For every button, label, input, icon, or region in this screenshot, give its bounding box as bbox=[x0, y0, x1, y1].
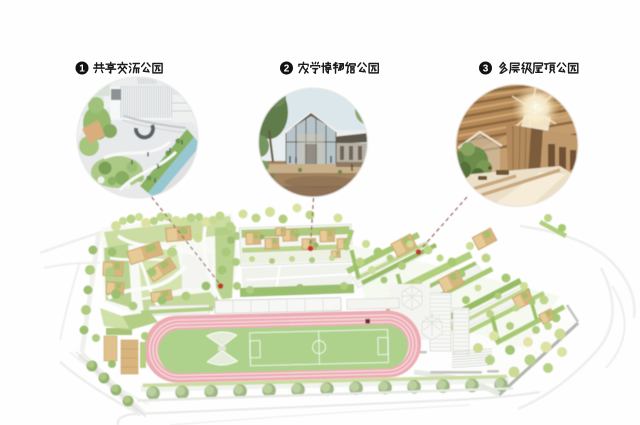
svg-text:3: 3 bbox=[483, 64, 489, 75]
svg-text:1: 1 bbox=[79, 64, 85, 75]
svg-text:2: 2 bbox=[284, 64, 290, 75]
